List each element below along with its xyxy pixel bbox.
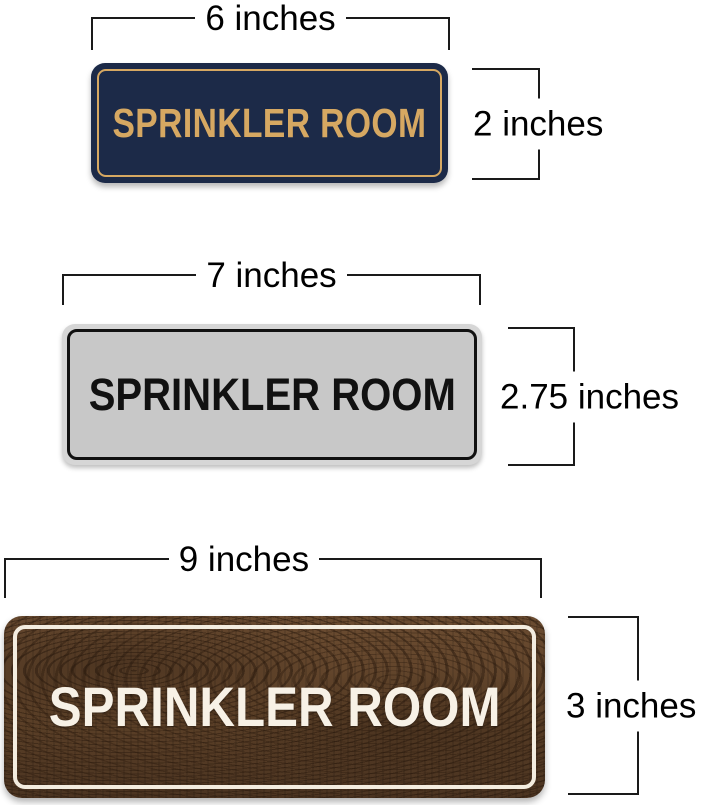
dimension-tick (508, 327, 575, 329)
dimension-tick (4, 558, 6, 598)
dimension-label: 2.75 inches (500, 371, 683, 422)
sign-size-diagram: 6 inches SPRINKLER ROOM 2 inches 7 inche… (0, 0, 722, 805)
dimension-label: 6 inches (195, 1, 345, 36)
sign-text: SPRINKLER ROOM (113, 103, 427, 144)
sign-text-wrap: SPRINKLER ROOM (4, 616, 545, 798)
dimension-line (319, 558, 542, 560)
height-dimension-2-75-inches: 2.75 inches (500, 327, 695, 466)
sign-text-wrap: SPRINKLER ROOM (62, 324, 482, 465)
dimension-tick (540, 558, 542, 598)
dimension-tick (62, 274, 64, 305)
dimension-label: 9 inches (169, 542, 319, 577)
dimension-label: 3 inches (566, 680, 700, 731)
dimension-label: 2 inches (473, 99, 607, 150)
height-dimension-3-inches: 3 inches (566, 616, 705, 795)
dimension-line (91, 17, 195, 19)
dimension-line (62, 274, 196, 276)
dimension-tick (568, 616, 639, 618)
dimension-tick (472, 178, 540, 180)
sign-text: SPRINKLER ROOM (88, 372, 455, 417)
sign-text: SPRINKLER ROOM (49, 679, 501, 735)
dimension-tick (91, 17, 93, 50)
dimension-tick (448, 17, 450, 50)
dimension-tick (479, 274, 481, 305)
dimension-label: 7 inches (196, 258, 346, 293)
dimension-line (346, 17, 450, 19)
dimension-tick (508, 464, 575, 466)
dimension-tick (568, 793, 639, 795)
sprinkler-sign-navy: SPRINKLER ROOM (91, 63, 448, 183)
height-dimension-2-inches: 2 inches (472, 68, 612, 180)
sprinkler-sign-silver: SPRINKLER ROOM (62, 324, 482, 465)
width-dimension-7-inches: 7 inches (62, 255, 481, 295)
width-dimension-6-inches: 6 inches (91, 0, 450, 38)
width-dimension-9-inches: 9 inches (4, 539, 542, 579)
dimension-tick (472, 68, 540, 70)
dimension-line (4, 558, 169, 560)
sign-text-wrap: SPRINKLER ROOM (91, 63, 448, 183)
sprinkler-sign-wood: SPRINKLER ROOM (4, 616, 545, 798)
dimension-line (347, 274, 481, 276)
